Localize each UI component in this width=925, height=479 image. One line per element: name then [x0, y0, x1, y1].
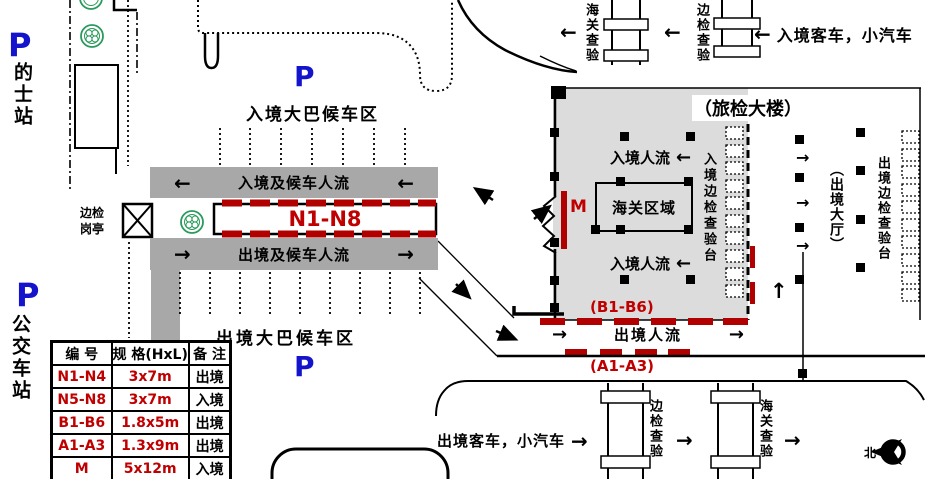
arrow-right-icon: →	[571, 431, 588, 451]
checkpoint-booth-label: 边检 岗亭	[80, 205, 104, 237]
up-arrow-icon: ↑	[770, 281, 788, 302]
outbound-bus-area-label: 出境大巴候车区	[216, 324, 356, 349]
arrow-left-icon: ←	[397, 173, 414, 193]
b-berths-label: (B1-B6)	[590, 298, 654, 316]
inbound-counters-label: 入境边检查验台	[702, 152, 715, 264]
lane-arrow-left-icon: ←	[664, 22, 681, 42]
taxi-p-symbol: P	[8, 26, 31, 64]
m-berth-label: M	[570, 197, 587, 217]
building-title: （旅检大楼）	[692, 95, 804, 121]
berth-spec: 3x7m	[112, 365, 189, 388]
hall-arrow-right-icon: →	[796, 150, 809, 166]
arrow-left-icon: ←	[174, 173, 191, 193]
berth-id: B1-B6	[52, 411, 112, 434]
berth-spec: 1.3x9m	[112, 434, 189, 457]
berth-note: 入境	[189, 457, 231, 479]
outbound-flow-label: 出境人流	[614, 324, 682, 345]
berth-note: 出境	[189, 365, 231, 388]
outbound-flow-row: → 出境人流 →	[552, 324, 744, 345]
lane-arrow-right-icon: →	[784, 430, 801, 450]
inbound-vehicles-row: ← 入境客车，小汽车	[754, 22, 913, 46]
outbound-flow-bar: → 出境及候车人流 →	[150, 238, 438, 270]
inbound-flow-bar: ← 入境及候车人流 ←	[150, 167, 438, 198]
top-border-lane-label: 边检查验	[695, 3, 708, 63]
arrow-right-icon: →	[552, 326, 567, 344]
arrow-right-icon: →	[174, 244, 191, 264]
berth-spec-table: 编 号 规 格(HxL) 备 注 N1-N4 3x7m 出境 N5-N8 3x7…	[50, 340, 232, 479]
inbound-parking-p-symbol: P	[294, 60, 315, 93]
hall-arrow-right-icon: →	[796, 238, 809, 254]
top-customs-lane-label: 海关查验	[584, 3, 597, 63]
parking-dividers-bottom	[180, 272, 420, 314]
outbound-vehicles-label: 出境客车，小汽车	[437, 430, 565, 451]
table-row: B1-B6 1.8x5m 出境	[52, 411, 231, 434]
berth-id: A1-A3	[52, 434, 112, 457]
arrow-left-icon: ←	[676, 149, 691, 167]
berth-spec: 5x12m	[112, 457, 189, 479]
header-id: 编 号	[52, 342, 112, 366]
header-spec: 规 格(HxL)	[112, 342, 189, 366]
bottom-customs-lane-label: 海关查验	[758, 399, 771, 459]
inbound-flow-label: 入境及候车人流	[238, 172, 350, 193]
berth-id: N1-N4	[52, 365, 112, 388]
transit-p-symbol: P	[16, 276, 39, 314]
arrow-left-icon: ←	[754, 24, 771, 44]
lane-arrow-right-icon: →	[676, 430, 693, 450]
outbound-flow-label: 出境及候车人流	[238, 244, 350, 265]
berth-note: 出境	[189, 434, 231, 457]
table-row: A1-A3 1.3x9m 出境	[52, 434, 231, 457]
inbound-flow-lower-row: 入境人流 ←	[610, 253, 691, 274]
table-row: N1-N4 3x7m 出境	[52, 365, 231, 388]
island-outline	[272, 449, 448, 479]
outbound-parking-p-symbol: P	[294, 350, 315, 383]
customs-zone-box: 海关区域	[595, 182, 693, 232]
berth-spec: 1.8x5m	[112, 411, 189, 434]
a-berth-dashes	[565, 349, 690, 355]
berth-spec: 3x7m	[112, 388, 189, 411]
berth-note: 出境	[189, 411, 231, 434]
berth-id: N5-N8	[52, 388, 112, 411]
inbound-flow-lower-label: 入境人流	[610, 253, 670, 274]
checkpoint-booth-box	[123, 204, 152, 237]
a-berths-label: (A1-A3)	[590, 357, 654, 375]
top-inspection-lanes	[604, 0, 760, 65]
north-label: 北	[864, 444, 876, 461]
berth-note: 入境	[189, 388, 231, 411]
outbound-counters-label: 出境边检查验台	[876, 156, 889, 261]
berth-id: M	[52, 457, 112, 479]
hall-arrow-right-icon: →	[796, 195, 809, 211]
bottom-border-lane-label: 边检查验	[648, 399, 661, 459]
inbound-vehicles-label: 入境客车，小汽车	[777, 22, 913, 46]
outbound-vehicles-row: 出境客车，小汽车 →	[437, 430, 588, 451]
customs-zone-label: 海关区域	[612, 197, 676, 218]
lane-arrow-left-icon: ←	[560, 22, 577, 42]
outbound-counter-booths	[902, 131, 919, 301]
header-note: 备 注	[189, 342, 231, 366]
table-header-row: 编 号 规 格(HxL) 备 注	[52, 342, 231, 366]
arrow-right-icon: →	[729, 326, 744, 344]
taxi-station-label: 的士站	[12, 62, 31, 128]
taxi-building-outline	[75, 65, 118, 148]
inbound-bus-area-label: 入境大巴候车区	[246, 100, 379, 125]
arrow-left-icon: ←	[676, 255, 691, 273]
table-row: N5-N8 3x7m 入境	[52, 388, 231, 411]
parking-dividers-top	[220, 128, 405, 166]
arrow-right-icon: →	[397, 244, 414, 264]
inbound-counter-booths	[726, 127, 743, 297]
n-berths-label: N1-N8	[214, 204, 436, 234]
inbound-flow-upper-label: 入境人流	[610, 147, 670, 168]
terminal-map: P 的士站 P 公交车站 P 入境大巴候车区 ← 入境及候车人流 ← 边检 岗亭…	[0, 0, 925, 479]
inbound-flow-upper-row: 入境人流 ←	[610, 147, 691, 168]
transit-station-label: 公交车站	[10, 314, 29, 402]
flow-direction-arrows	[456, 189, 549, 339]
table-row: M 5x12m 入境	[52, 457, 231, 479]
outbound-hall-label: （出境大厅）	[829, 162, 843, 252]
